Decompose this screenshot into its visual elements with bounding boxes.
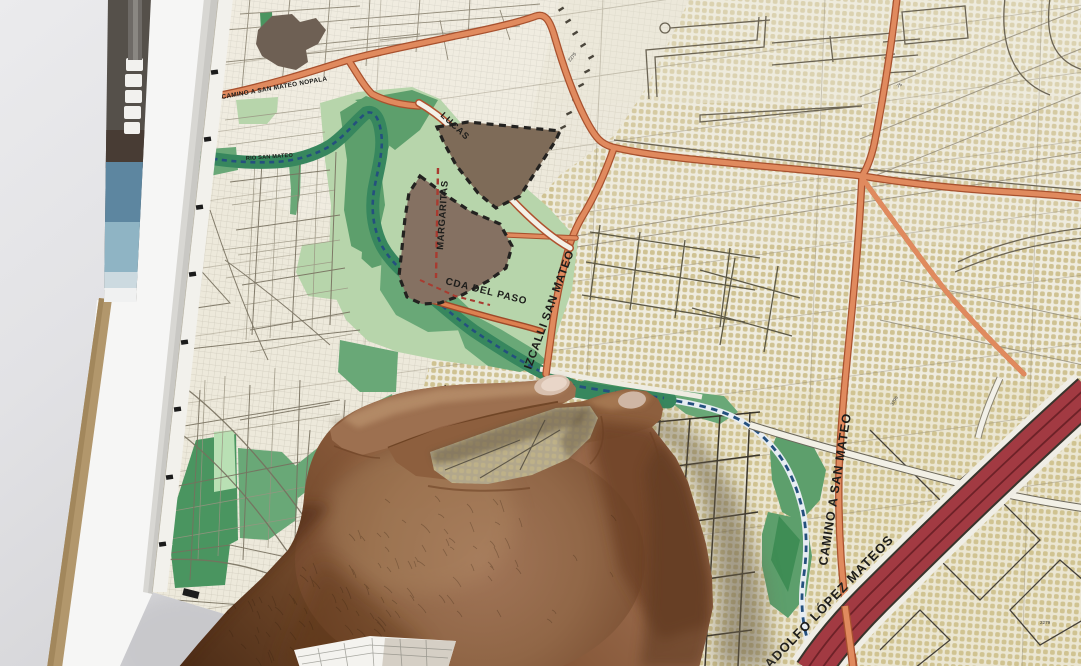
svg-text:2279: 2279 (1040, 620, 1051, 625)
